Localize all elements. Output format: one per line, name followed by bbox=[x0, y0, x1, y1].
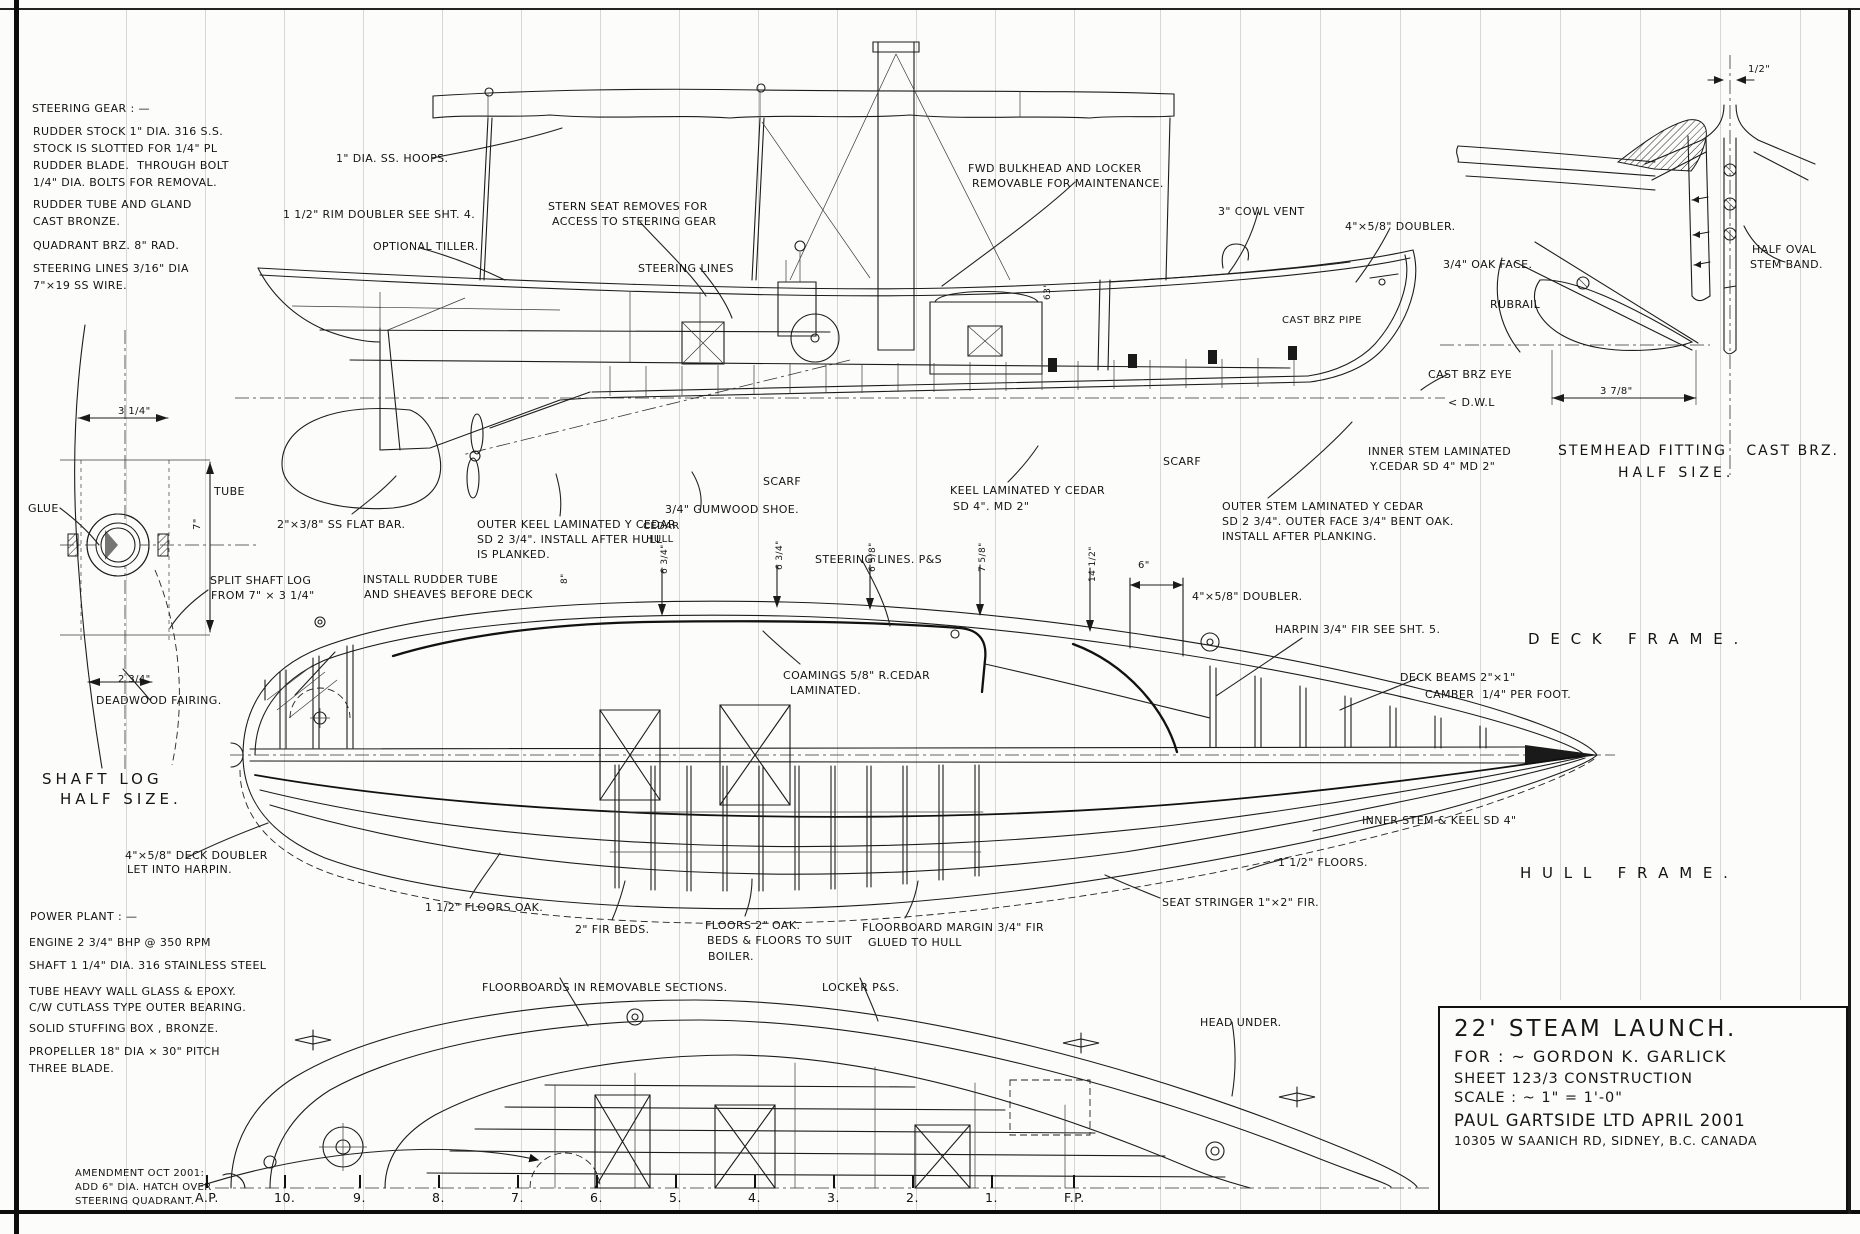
annotation: 8" bbox=[560, 573, 571, 584]
annotation: OPTIONAL TILLER. bbox=[373, 240, 479, 254]
annotation: BOILER. bbox=[708, 950, 754, 964]
annotation: SCARF bbox=[1163, 455, 1201, 469]
annotation: GLUED TO HULL bbox=[868, 936, 962, 950]
annotation: 6 5/8" bbox=[868, 542, 879, 572]
annotation: DEADWOOD FAIRING. bbox=[96, 694, 222, 708]
drawing-title: 22' STEAM LAUNCH. bbox=[1454, 1016, 1832, 1042]
annotation: 3 7/8" bbox=[1600, 386, 1633, 399]
annotation: 2"×3/8" SS FLAT BAR. bbox=[277, 518, 405, 532]
station-label: A.P. bbox=[195, 1190, 219, 1205]
station-label: 6. bbox=[590, 1190, 603, 1205]
annotation: 1 1/2" RIM DOUBLER SEE SHT. 4. bbox=[283, 208, 475, 222]
annotation: STEMHEAD FITTING CAST BRZ. bbox=[1558, 443, 1839, 461]
annotation: FLOORS 2" OAK. bbox=[705, 919, 800, 933]
annotation: 1/2" bbox=[1748, 64, 1770, 77]
annotation: LAMINATED. bbox=[790, 684, 861, 698]
annotation: C/W CUTLASS TYPE OUTER BEARING. bbox=[29, 1001, 246, 1015]
annotation: FWD BULKHEAD AND LOCKER bbox=[968, 162, 1142, 176]
station-label: 1. bbox=[985, 1190, 998, 1205]
address-line: 10305 W SAANICH RD, SIDNEY, B.C. CANADA bbox=[1454, 1133, 1832, 1148]
annotation: STEERING LINES bbox=[638, 262, 734, 276]
annotation: H U L L F R A M E . bbox=[1520, 864, 1731, 883]
sheet-line: SHEET 123/3 CONSTRUCTION bbox=[1454, 1071, 1832, 1087]
annotation: HEAD UNDER. bbox=[1200, 1016, 1282, 1030]
annotation: ADD 6" DIA. HATCH OVER bbox=[75, 1182, 212, 1195]
annotation: INNER STEM LAMINATED bbox=[1368, 445, 1511, 459]
annotation: PROPELLER 18" DIA × 30" PITCH bbox=[29, 1045, 220, 1059]
annotation: CAST BRZ EYE bbox=[1428, 368, 1512, 382]
annotation: Y.CEDAR SD 4" MD 2" bbox=[1370, 460, 1495, 474]
annotation: STEERING GEAR : — bbox=[32, 102, 150, 116]
annotation: ACCESS TO STEERING GEAR bbox=[552, 215, 717, 229]
annotation: SHAFT 1 1/4" DIA. 316 STAINLESS STEEL bbox=[29, 959, 266, 973]
station-label: 9. bbox=[353, 1190, 366, 1205]
annotation: HALF SIZE. bbox=[60, 790, 182, 809]
annotation: 7 5/8" bbox=[978, 542, 989, 572]
annotation: 6 3/4" bbox=[660, 544, 671, 574]
annotation: SHAFT LOG bbox=[42, 770, 163, 789]
annotation: TUBE HEAVY WALL GLASS & EPOXY. bbox=[29, 985, 236, 999]
station-label: F.P. bbox=[1064, 1190, 1085, 1205]
annotation: COAMINGS 5/8" R.CEDAR bbox=[783, 669, 930, 683]
annotation: AMENDMENT OCT 2001: bbox=[75, 1168, 204, 1181]
annotation: 3/4" GUMWOOD SHOE. bbox=[665, 503, 799, 517]
annotation: 4"×5/8" DECK DOUBLER bbox=[125, 849, 268, 863]
annotation: SPLIT SHAFT LOG bbox=[210, 574, 311, 588]
annotation: INNER STEM & KEEL SD 4" bbox=[1362, 814, 1516, 828]
annotation: 3/4" OAK FACE. bbox=[1443, 258, 1532, 272]
annotation: SD 4". MD 2" bbox=[953, 500, 1029, 514]
annotation: 4"×5/8" DOUBLER. bbox=[1192, 590, 1303, 604]
annotation: STOCK IS SLOTTED FOR 1/4" PL bbox=[33, 142, 217, 156]
title-block: 22' STEAM LAUNCH. FOR : ~ GORDON K. GARL… bbox=[1438, 1006, 1848, 1212]
firm-line: PAUL GARTSIDE LTD APRIL 2001 bbox=[1454, 1111, 1832, 1130]
annotation: STEERING LINES 3/16" DIA bbox=[33, 262, 189, 276]
client-line: FOR : ~ GORDON K. GARLICK bbox=[1454, 1047, 1832, 1066]
station-label: 4. bbox=[748, 1190, 761, 1205]
annotation: CAST BRZ PIPE bbox=[1282, 315, 1362, 328]
annotation: STEERING QUADRANT. bbox=[75, 1196, 194, 1209]
annotation: KEEL LAMINATED Y CEDAR bbox=[950, 484, 1105, 498]
annotation: 1" DIA. SS. HOOPS. bbox=[336, 152, 448, 166]
annotation: BEDS & FLOORS TO SUIT bbox=[707, 934, 852, 948]
annotation: RUDDER BLADE. THROUGH BOLT bbox=[33, 159, 229, 173]
annotation: POWER PLANT : — bbox=[30, 910, 137, 924]
annotation: 2" FIR BEDS. bbox=[575, 923, 650, 937]
annotation: INSTALL AFTER PLANKING. bbox=[1222, 530, 1377, 544]
annotation: THREE BLADE. bbox=[29, 1062, 114, 1076]
station-label: 2. bbox=[906, 1190, 919, 1205]
annotation: STEM BAND. bbox=[1750, 258, 1823, 272]
annotation: OUTER KEEL LAMINATED Y CEDAR bbox=[477, 518, 676, 532]
annotation: LET INTO HARPIN. bbox=[127, 863, 232, 877]
annotation: HARPIN 3/4" FIR SEE SHT. 5. bbox=[1275, 623, 1440, 637]
blueprint-sheet: STEERING GEAR : —RUDDER STOCK 1" DIA. 31… bbox=[0, 0, 1860, 1234]
scale-line: SCALE : ~ 1" = 1'-0" bbox=[1454, 1090, 1832, 1106]
annotation: CAMBER 1/4" PER FOOT. bbox=[1425, 688, 1571, 702]
annotation: SCARF bbox=[763, 475, 801, 489]
annotation: 7"×19 SS WIRE. bbox=[33, 279, 127, 293]
station-label: 10. bbox=[274, 1190, 295, 1205]
station-label: 5. bbox=[669, 1190, 682, 1205]
annotation: ENGINE 2 3/4" BHP @ 350 RPM bbox=[29, 936, 211, 950]
annotation: 1/4" DIA. BOLTS FOR REMOVAL. bbox=[33, 176, 217, 190]
annotation: HALF SIZE. bbox=[1618, 465, 1734, 483]
annotation: CAST BRONZE. bbox=[33, 215, 120, 229]
annotation: FROM 7" × 3 1/4" bbox=[211, 589, 315, 603]
annotation: DECK BEAMS 2"×1" bbox=[1400, 671, 1516, 685]
annotation: 6 3/4" bbox=[775, 540, 786, 570]
annotation: 14 1/2" bbox=[1088, 546, 1099, 582]
annotation: HALF OVAL bbox=[1752, 243, 1816, 257]
annotation: 1 1/2" FLOORS OAK. bbox=[425, 901, 543, 915]
annotation: < D.W.L bbox=[1448, 396, 1495, 410]
station-label: 3. bbox=[827, 1190, 840, 1205]
annotation: 3" COWL VENT bbox=[1218, 205, 1305, 219]
annotation: 3 1/4" bbox=[118, 406, 151, 419]
station-label: 8. bbox=[432, 1190, 445, 1205]
annotation: TUBE bbox=[214, 485, 245, 499]
annotation: GLUE bbox=[28, 502, 59, 516]
annotation: AND SHEAVES BEFORE DECK bbox=[364, 588, 533, 602]
annotation: FLOORBOARD MARGIN 3/4" FIR bbox=[862, 921, 1044, 935]
annotation: FLOORBOARDS IN REMOVABLE SECTIONS. bbox=[482, 981, 728, 995]
annotation: RUDDER TUBE AND GLAND bbox=[33, 198, 192, 212]
annotation: D E C K F R A M E . bbox=[1528, 630, 1741, 649]
annotation: 4"×5/8" DOUBLER. bbox=[1345, 220, 1456, 234]
annotation: 6" bbox=[1138, 560, 1150, 573]
annotation: OUTER STEM LAMINATED Y CEDAR bbox=[1222, 500, 1424, 514]
annotation: RUDDER STOCK 1" DIA. 316 S.S. bbox=[33, 125, 223, 139]
annotation: STERN SEAT REMOVES FOR bbox=[548, 200, 708, 214]
annotation: INSTALL RUDDER TUBE bbox=[363, 573, 498, 587]
annotation: QUADRANT BRZ. 8" RAD. bbox=[33, 239, 179, 253]
annotation: 7" bbox=[192, 518, 205, 530]
annotation: RUBRAIL bbox=[1490, 298, 1540, 312]
annotation: 1 1/2" FLOORS. bbox=[1278, 856, 1368, 870]
annotation: REMOVABLE FOR MAINTENANCE. bbox=[972, 177, 1164, 191]
annotation: SD 2 3/4". INSTALL AFTER HULL bbox=[477, 533, 662, 547]
annotation: 2 3/4" bbox=[118, 674, 151, 687]
annotation: LOCKER P&S. bbox=[822, 981, 899, 995]
annotation: SOLID STUFFING BOX , BRONZE. bbox=[29, 1022, 218, 1036]
station-label: 7. bbox=[511, 1190, 524, 1205]
annotation: IS PLANKED. bbox=[477, 548, 550, 562]
annotation: SEAT STRINGER 1"×2" FIR. bbox=[1162, 896, 1319, 910]
annotation: SD 2 3/4". OUTER FACE 3/4" BENT OAK. bbox=[1222, 515, 1454, 529]
annotation: 63" bbox=[1043, 283, 1054, 300]
